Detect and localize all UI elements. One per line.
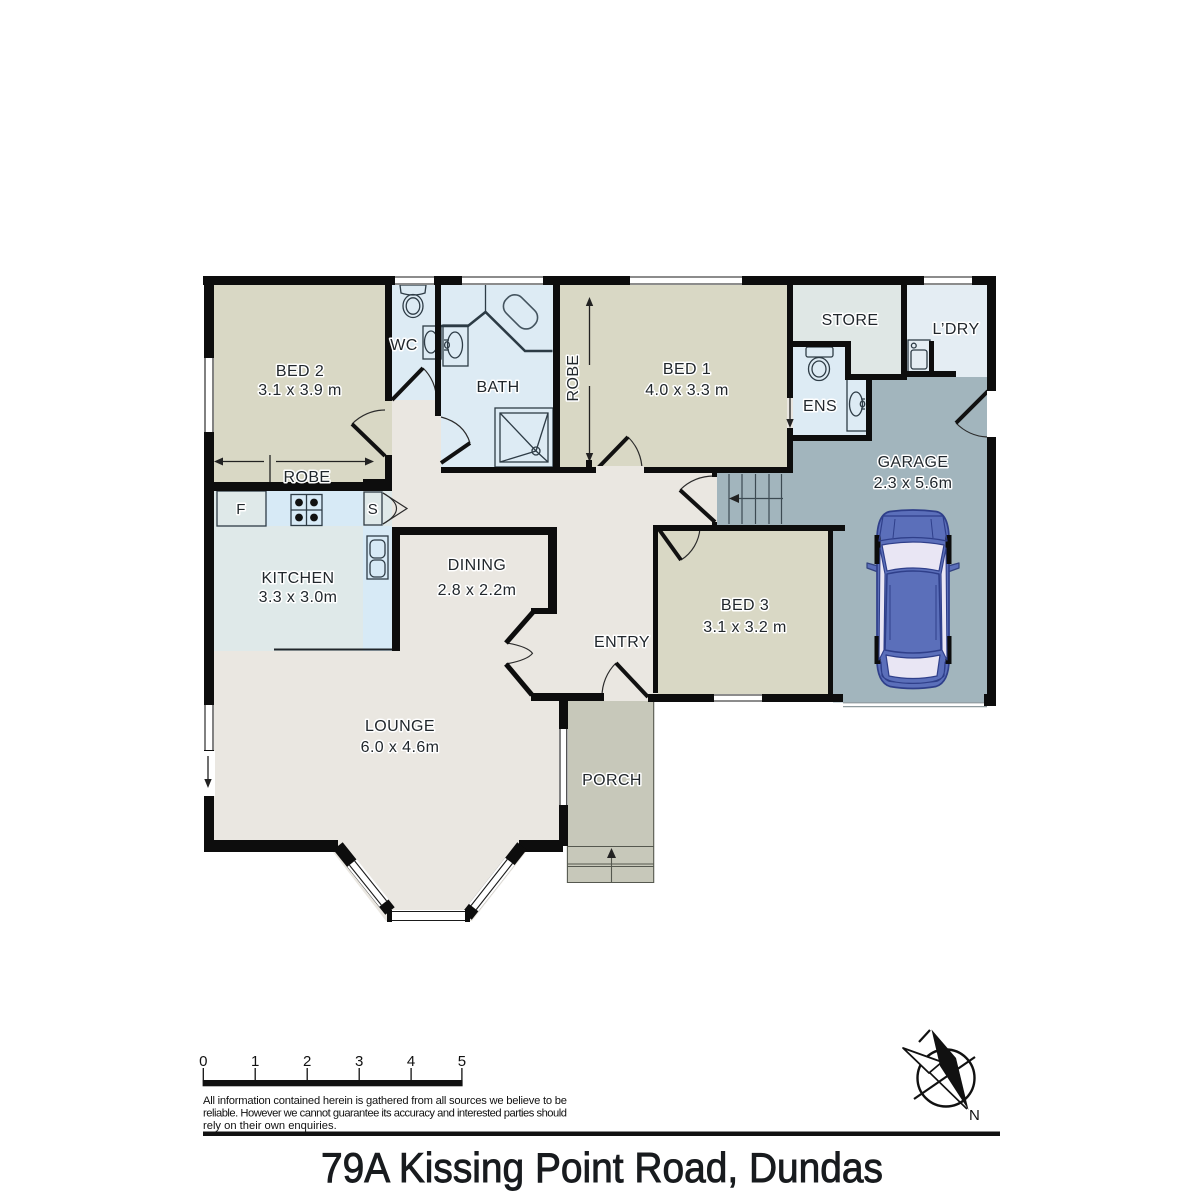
svg-text:2: 2 [303,1053,311,1070]
svg-text:3.1 x 3.2 m: 3.1 x 3.2 m [703,619,787,636]
svg-text:L’DRY: L’DRY [932,321,979,338]
svg-text:KITCHEN: KITCHEN [261,570,334,587]
svg-text:3: 3 [355,1053,363,1070]
svg-text:LOUNGE: LOUNGE [365,718,435,735]
svg-text:3.3 x 3.0m: 3.3 x 3.0m [259,589,338,606]
svg-text:F: F [236,501,246,518]
svg-text:N: N [969,1107,980,1124]
svg-text:S: S [368,501,378,518]
svg-text:6.0 x 4.6m: 6.0 x 4.6m [361,739,440,756]
svg-text:GARAGE: GARAGE [878,454,949,471]
svg-text:PORCH: PORCH [582,772,642,789]
svg-text:BED 3: BED 3 [721,597,769,614]
svg-text:0: 0 [199,1053,207,1070]
svg-text:STORE: STORE [822,312,879,329]
svg-text:1: 1 [251,1053,259,1070]
svg-text:2.8 x 2.2m: 2.8 x 2.2m [438,582,517,599]
svg-text:ROBE: ROBE [565,355,582,402]
svg-text:ENTRY: ENTRY [594,634,650,651]
svg-text:79A Kissing Point Road, Dundas: 79A Kissing Point Road, Dundas [321,1144,883,1191]
svg-text:BED 1: BED 1 [663,361,711,378]
svg-text:ROBE: ROBE [284,469,331,486]
svg-text:reliable. However we cannot gu: reliable. However we cannot guarantee it… [203,1108,567,1120]
svg-text:5: 5 [458,1053,466,1070]
svg-text:4.0 x 3.3 m: 4.0 x 3.3 m [645,382,729,399]
svg-text:All information contained here: All information contained herein is gath… [203,1095,567,1107]
svg-text:3.1 x 3.9 m: 3.1 x 3.9 m [258,382,342,399]
svg-text:4: 4 [407,1053,415,1070]
svg-text:ENS: ENS [803,398,837,415]
svg-text:rely on their own enquiries.: rely on their own enquiries. [203,1120,337,1132]
svg-text:WC: WC [390,337,417,354]
svg-text:2.3 x 5.6m: 2.3 x 5.6m [874,475,953,492]
svg-text:DINING: DINING [448,557,506,574]
svg-text:BATH: BATH [476,379,519,396]
svg-text:BED 2: BED 2 [276,363,324,380]
